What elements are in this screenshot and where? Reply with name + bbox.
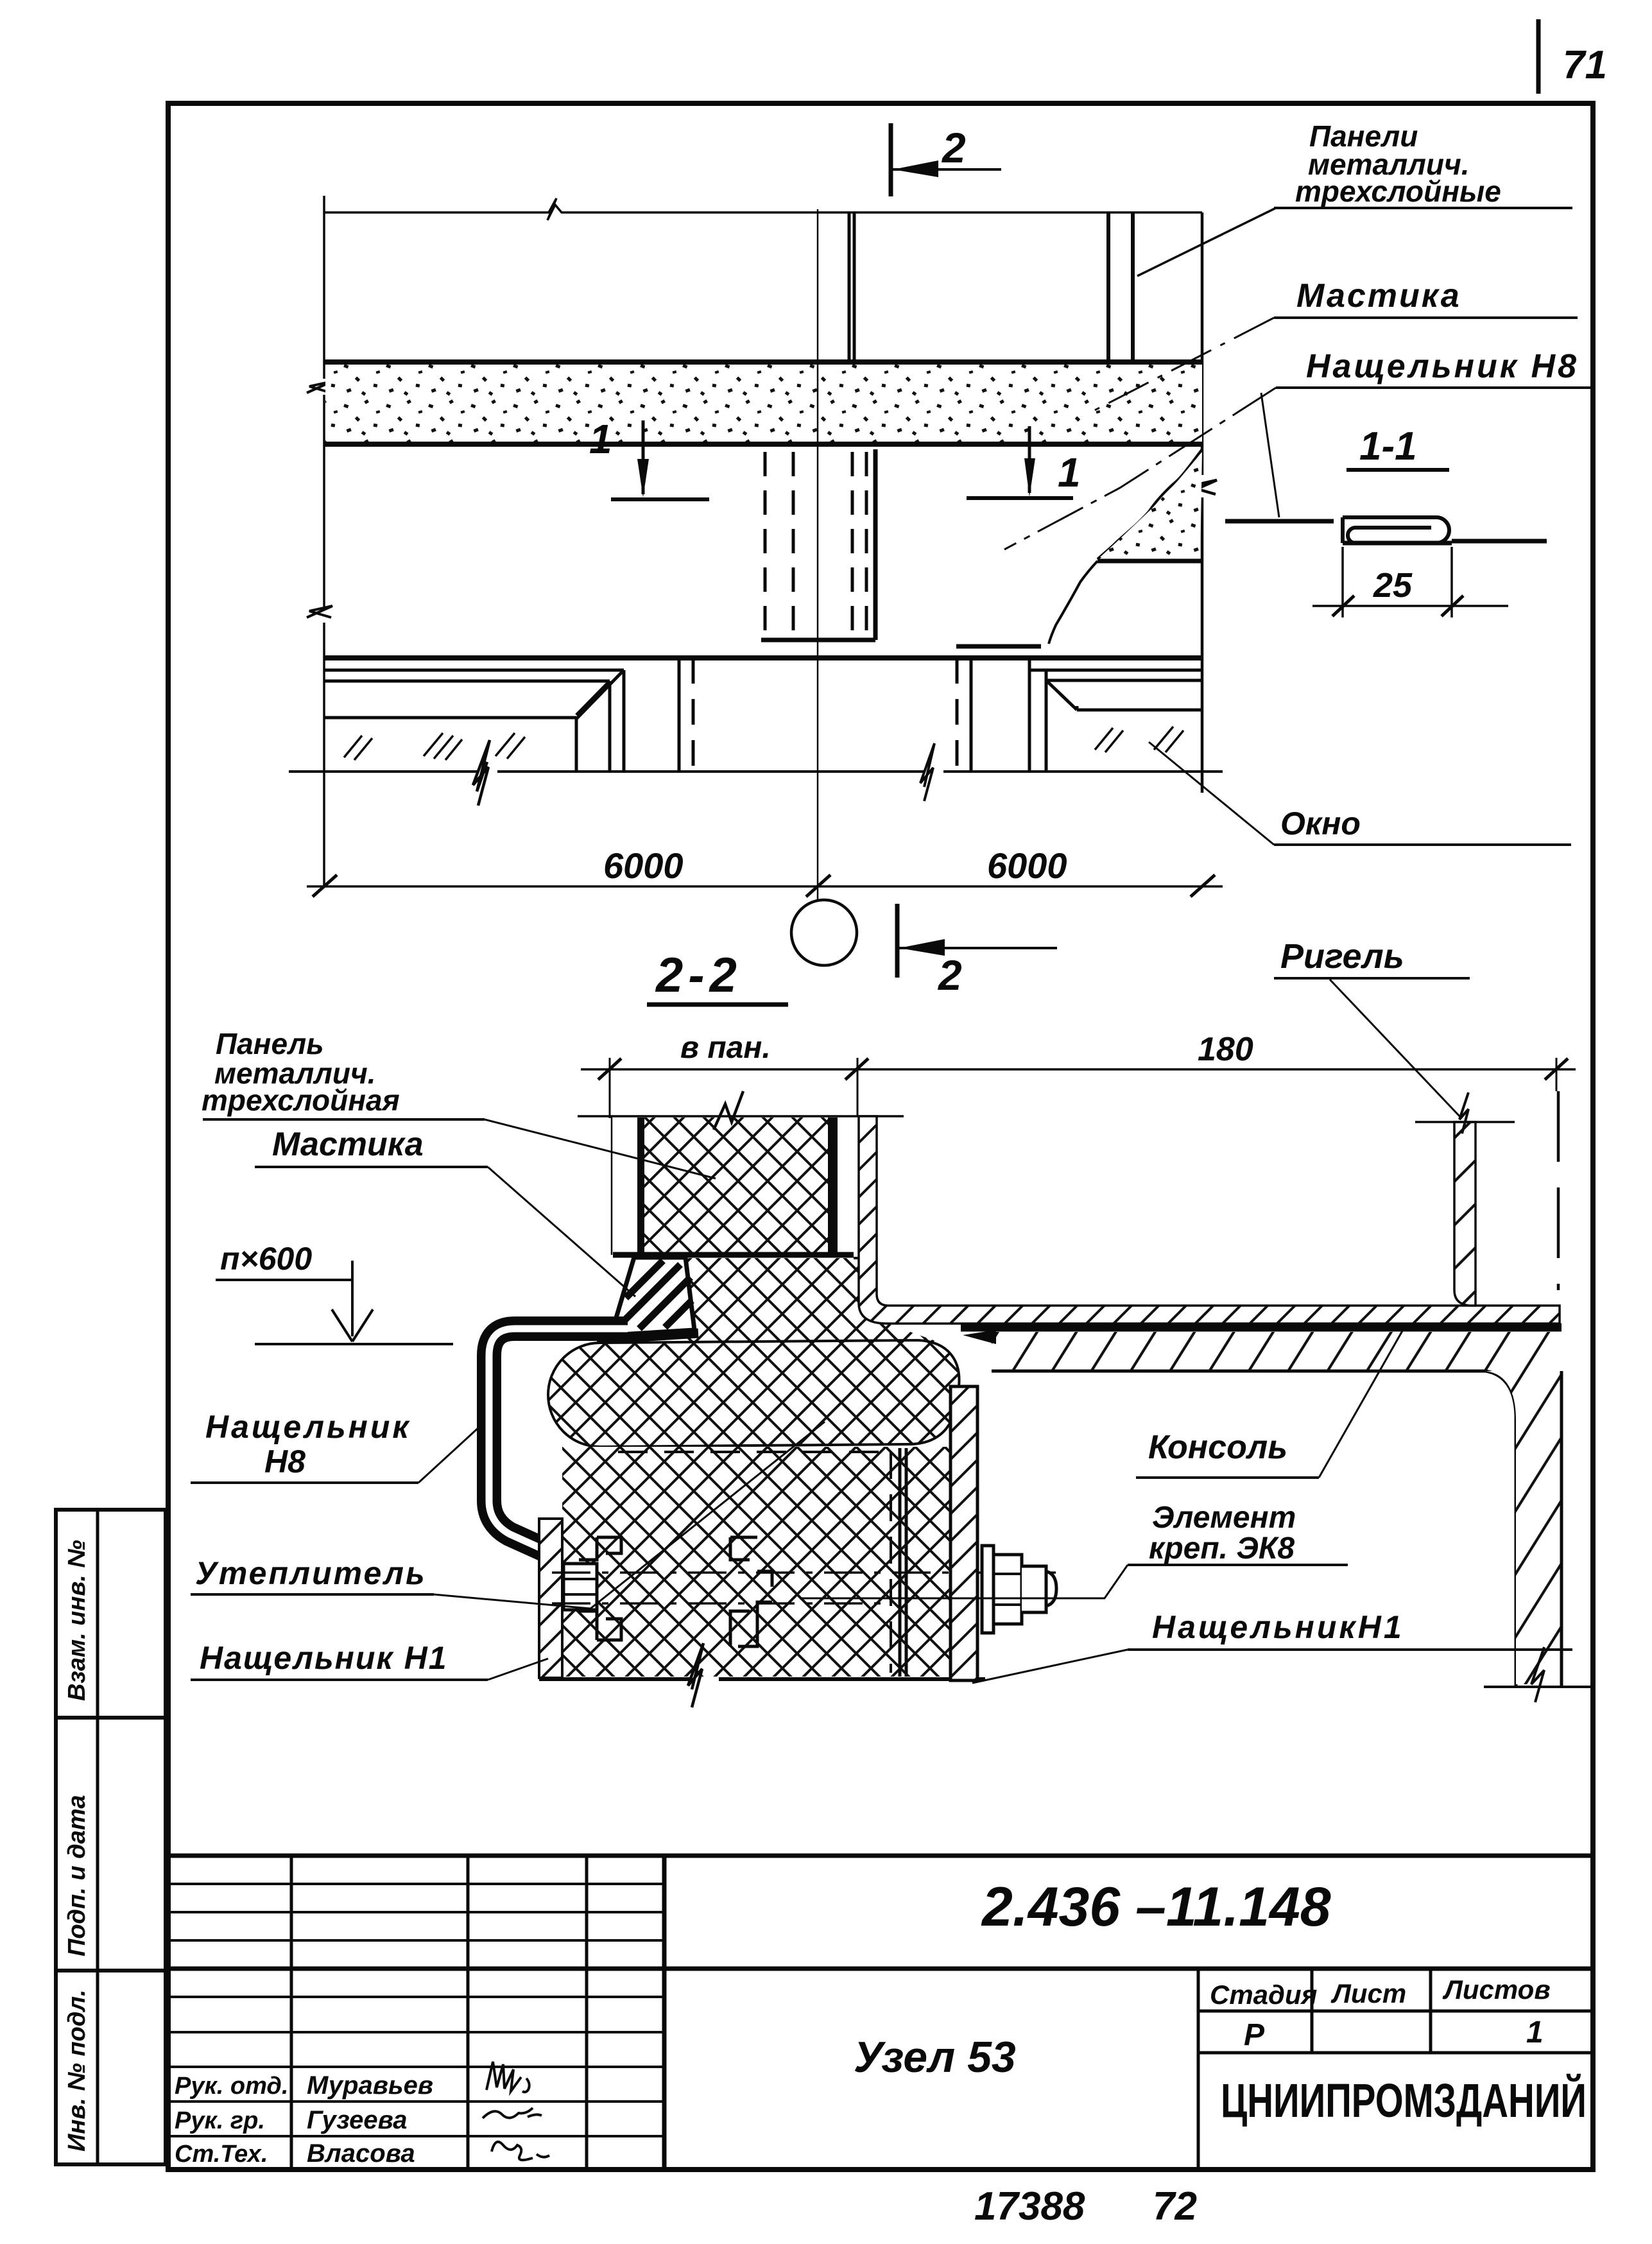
svg-text:Муравьев: Муравьев — [307, 2071, 433, 2100]
svg-text:Мастика: Мастика — [272, 1126, 424, 1163]
svg-text:2: 2 — [937, 951, 962, 999]
svg-text:Н8: Н8 — [264, 1444, 305, 1480]
svg-text:17388: 17388 — [974, 2184, 1085, 2229]
svg-text:6000: 6000 — [603, 845, 684, 886]
svg-text:25: 25 — [1373, 566, 1413, 605]
svg-text:в пан.: в пан. — [680, 1031, 771, 1065]
svg-text:ЦНИИПРОМЗДАНИЙ: ЦНИИПРОМЗДАНИЙ — [1221, 2073, 1587, 2127]
svg-text:180: 180 — [1198, 1031, 1253, 1068]
svg-text:Стадия: Стадия — [1210, 1980, 1317, 2010]
svg-text:72: 72 — [1153, 2184, 1197, 2229]
svg-text:6000: 6000 — [987, 845, 1067, 886]
svg-text:Гузеева: Гузеева — [307, 2106, 408, 2134]
svg-text:Консоль: Консоль — [1148, 1429, 1287, 1466]
svg-text:71: 71 — [1563, 43, 1607, 87]
svg-text:Р: Р — [1244, 2018, 1265, 2052]
svg-text:1: 1 — [1526, 2015, 1544, 2050]
svg-text:Рук. гр.: Рук. гр. — [175, 2107, 265, 2134]
svg-text:2.436 –11.148: 2.436 –11.148 — [981, 1876, 1331, 1938]
svg-text:Панель: Панель — [216, 1027, 324, 1060]
svg-text:Инв. № подл.: Инв. № подл. — [64, 1989, 90, 2152]
svg-text:Ст.Тех.: Ст.Тех. — [175, 2141, 268, 2168]
svg-text:трехслойные: трехслойные — [1295, 175, 1501, 208]
svg-text:1: 1 — [589, 416, 612, 462]
svg-text:п×600: п×600 — [220, 1241, 312, 1277]
svg-text:2-2: 2-2 — [655, 948, 742, 1003]
svg-text:Узел 53: Узел 53 — [854, 2033, 1016, 2082]
svg-text:Мастика: Мастика — [1296, 277, 1461, 315]
svg-text:Элемент: Элемент — [1152, 1501, 1296, 1535]
svg-text:Власова: Власова — [307, 2139, 415, 2168]
svg-text:Рук. отд.: Рук. отд. — [175, 2073, 288, 2100]
svg-text:Утеплитель: Утеплитель — [195, 1555, 427, 1591]
svg-text:Подп. и дата: Подп. и дата — [64, 1795, 90, 1956]
svg-text:1-1: 1-1 — [1359, 424, 1417, 469]
svg-text:2: 2 — [941, 124, 966, 171]
svg-text:Нащельник Н1: Нащельник Н1 — [200, 1640, 448, 1676]
svg-text:Окно: Окно — [1280, 806, 1361, 841]
svg-text:Нащельник: Нащельник — [205, 1409, 411, 1445]
svg-text:креп. ЭК8: креп. ЭК8 — [1149, 1532, 1295, 1566]
svg-text:Ригель: Ригель — [1280, 937, 1404, 976]
svg-text:1: 1 — [1058, 449, 1081, 496]
svg-text:трехслойная: трехслойная — [202, 1083, 400, 1117]
svg-text:Лист: Лист — [1330, 1978, 1406, 2008]
svg-text:Взам. инв. №: Взам. инв. № — [64, 1540, 90, 1701]
svg-text:Нащельник Н8: Нащельник Н8 — [1306, 348, 1579, 385]
svg-text:Листов: Листов — [1442, 1974, 1551, 2005]
svg-text:НащельникН1: НащельникН1 — [1152, 1609, 1404, 1645]
